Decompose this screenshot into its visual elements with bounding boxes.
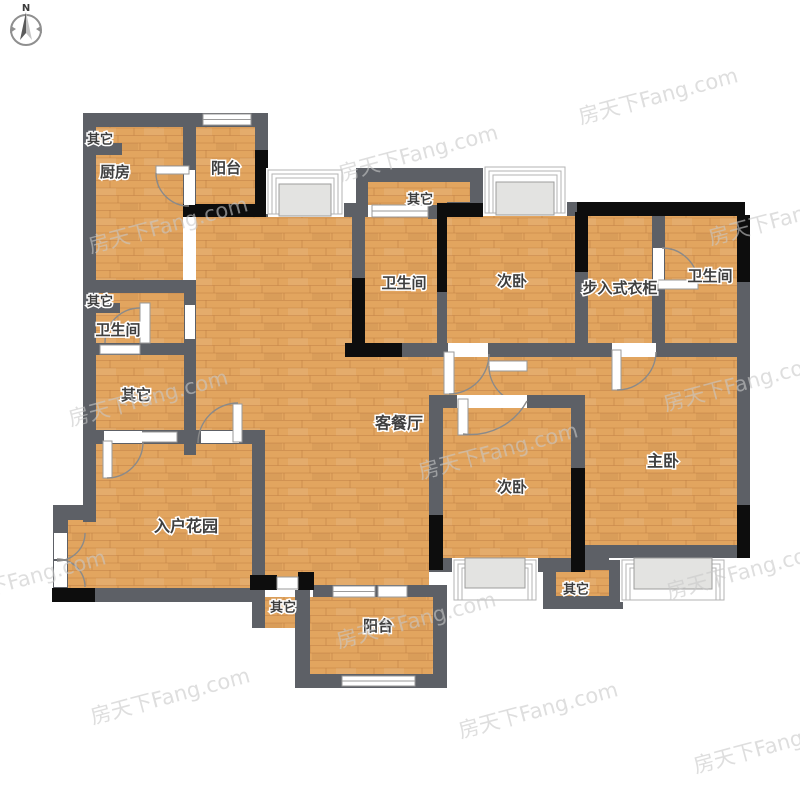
floorplan-page: 其它 厨房 阳台 其它 卫生间 次卧 步入式衣柜 卫生间 其它 卫生间 其它 客…: [0, 0, 800, 800]
wall-segment: [95, 588, 265, 602]
room-label-living-dining: 客餐厅: [375, 414, 423, 433]
room-label-master-bedroom: 主卧: [647, 452, 679, 471]
watermark-text: 房天下Fang.com: [576, 63, 741, 129]
wall-segment: [352, 217, 365, 278]
door-leaf: [140, 303, 150, 343]
wall-segment: [585, 545, 750, 558]
watermark-text: 房天下Fang.com: [691, 712, 800, 778]
bay-window-sill: [496, 182, 554, 215]
room-label-bathroom-left: 卫生间: [95, 321, 140, 339]
wall-segment: [437, 292, 447, 343]
wall-segment-black: [577, 202, 745, 216]
window: [100, 345, 140, 354]
room-label-other-top-middle: 其它: [407, 192, 433, 208]
room-label-other-left: 其它: [87, 294, 113, 310]
room-label-other-bottom-right: 其它: [563, 582, 589, 598]
room-label-bedroom-second-bottom: 次卧: [497, 478, 527, 496]
wall-segment-black: [298, 572, 314, 590]
room-label-kitchen: 厨房: [100, 163, 130, 181]
compass-tick-west: [10, 26, 16, 33]
watermark-text: 房天下Fang.com: [88, 663, 253, 729]
door-leaf: [156, 166, 189, 174]
room-label-other-top-left: 其它: [87, 132, 113, 148]
room-label-other-bottom-left: 其它: [270, 600, 296, 616]
door-leaf: [233, 404, 242, 442]
compass-north-label: N: [22, 3, 30, 14]
wall-segment-black: [571, 533, 585, 572]
wall-segment: [402, 343, 448, 357]
room-label-bathroom-right: 卫生间: [687, 267, 732, 285]
wall-segment-black: [250, 575, 277, 590]
wall-segment-black: [571, 468, 585, 533]
door-leaf: [612, 350, 621, 390]
wall-segment-black: [737, 505, 750, 558]
door-leaf: [103, 441, 112, 478]
room-label-bedroom-second-top: 次卧: [497, 272, 527, 290]
door-leaf: [489, 361, 527, 371]
room-label-bathroom-middle: 卫生间: [381, 274, 426, 292]
bay-window-sill: [465, 558, 525, 588]
window: [277, 577, 298, 589]
bay-window-bedroom-top: [483, 165, 567, 215]
wall-segment-black: [437, 210, 447, 292]
wall-segment: [53, 505, 96, 520]
bay-window-living-top: [266, 168, 344, 216]
floorplan-svg: 其它 厨房 阳台 其它 卫生间 次卧 步入式衣柜 卫生间 其它 卫生间 其它 客…: [0, 0, 800, 800]
window: [378, 586, 407, 597]
corridor-floor: [530, 357, 587, 400]
wall-segment: [344, 203, 360, 217]
wall-segment-black: [345, 343, 402, 357]
room-label-entrance-garden: 入户花园: [154, 517, 218, 536]
window: [137, 432, 177, 442]
door-opening: [184, 170, 195, 205]
watermark-text: 房天下Fang.com: [456, 677, 621, 743]
room-label-balcony-top: 阳台: [211, 159, 241, 177]
wall-segment: [295, 590, 310, 688]
door-opening: [185, 305, 195, 339]
wall-segment-black: [429, 515, 443, 570]
wall-segment: [252, 602, 265, 628]
door-leaf: [458, 399, 468, 435]
door-leaf: [444, 352, 454, 394]
compass-tick-east: [36, 26, 42, 33]
wall-segment-black: [52, 588, 95, 602]
room-label-walk-in-closet: 步入式衣柜: [582, 279, 657, 297]
compass: N: [10, 3, 42, 45]
bay-window-sill: [279, 184, 331, 216]
wall-segment-black: [575, 212, 588, 272]
wall-segment: [83, 280, 196, 293]
